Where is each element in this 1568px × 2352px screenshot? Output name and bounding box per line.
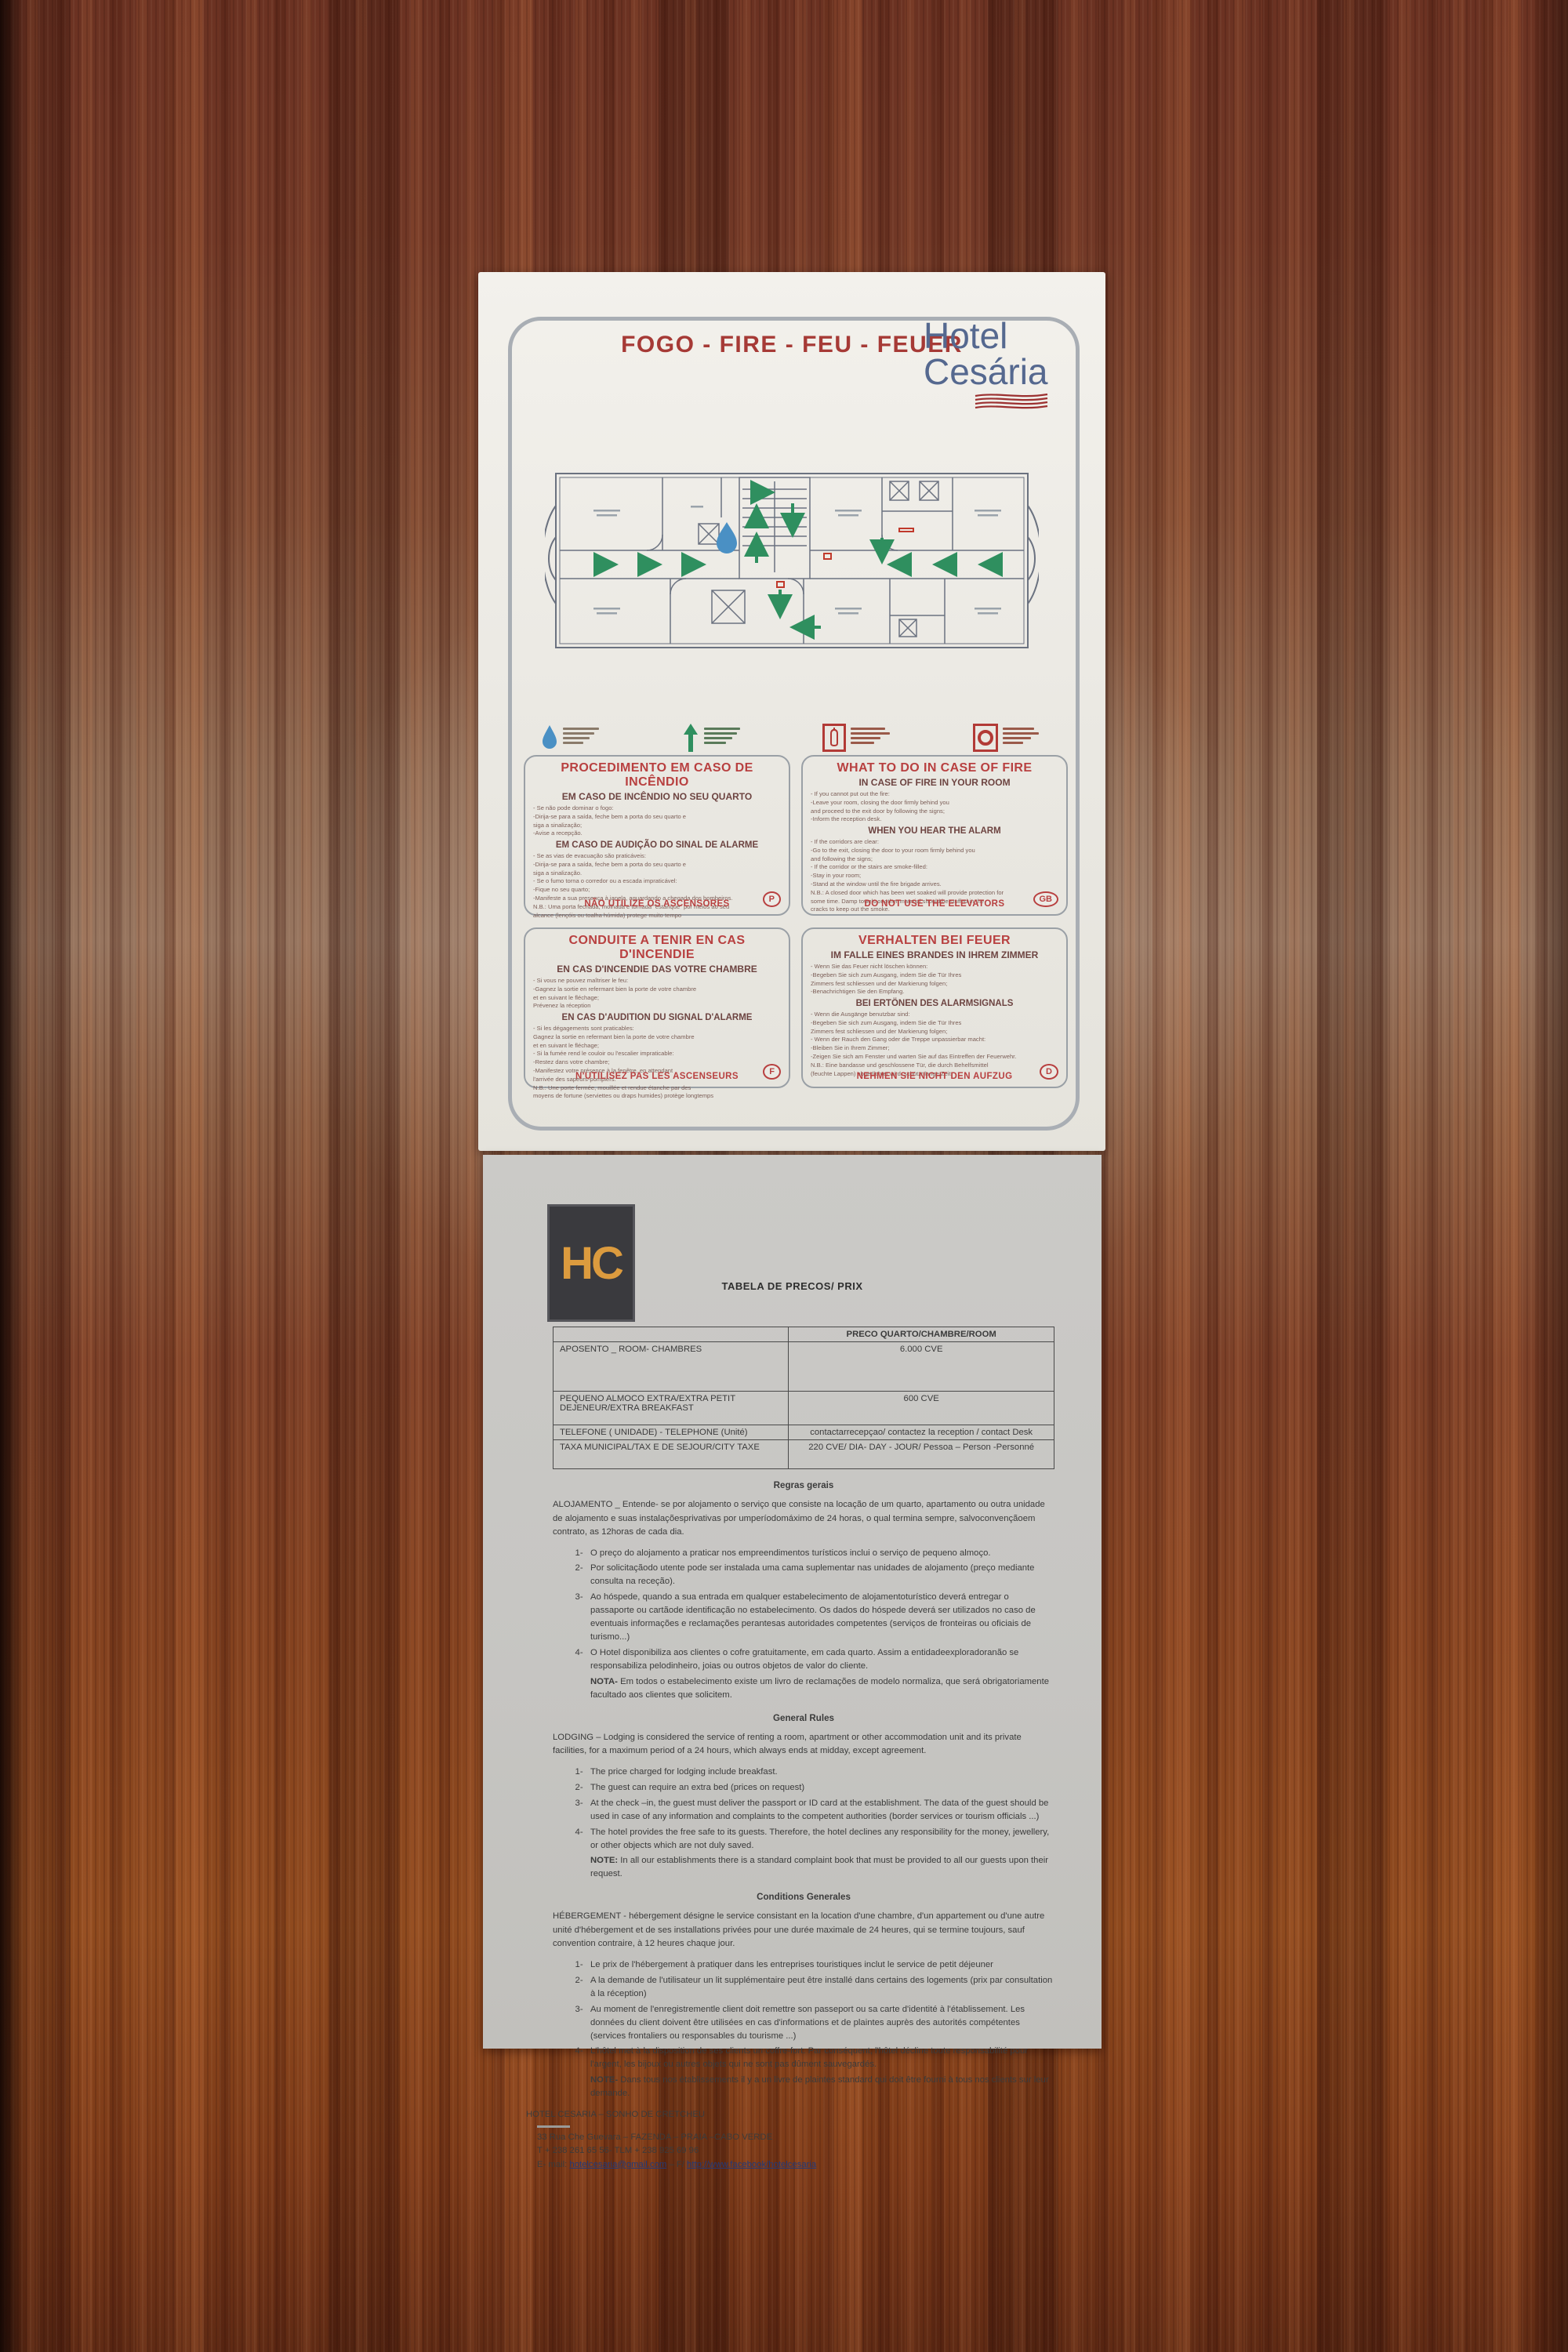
email-link[interactable]: hotelcesaria@gmail.com — [569, 2160, 666, 2169]
notice-body: - Wenn Sie das Feuer nicht löschen könne… — [811, 963, 1058, 996]
evacuation-floor-plan — [545, 463, 1039, 659]
you-are-here-droplet — [717, 522, 737, 554]
list-item: The guest can require an extra bed (pric… — [590, 1781, 1054, 1795]
fire-hose-reel-icon — [973, 724, 998, 752]
table-cell-label: PEQUENO ALMOCO EXTRA/EXTRA PETIT DEJENEU… — [554, 1392, 789, 1425]
table-cell-label: APOSENTO _ ROOM- CHAMBRES — [554, 1342, 789, 1392]
plan-legend — [508, 724, 1072, 752]
rules-list-en: The price charged for lodging include br… — [575, 1766, 1054, 1853]
heading-general-rules: General Rules — [553, 1713, 1054, 1723]
hotel-name-line: HOTEL CESARIA – SONHO DE CRETCHEU — [526, 2108, 1054, 2122]
hc-logo: HC — [547, 1204, 635, 1322]
table-row: APOSENTO _ ROOM- CHAMBRES 6.000 CVE — [554, 1342, 1054, 1392]
heading-regras-gerais: Regras gerais — [553, 1480, 1054, 1490]
list-item: At the check –in, the guest must deliver… — [590, 1797, 1054, 1824]
email-prefix: E- mail: — [537, 2160, 567, 2169]
notice-body: - If you cannot put out the fire: -Leave… — [811, 790, 1058, 824]
notice-subtitle: IM FALLE EINES BRANDES IN IHREM ZIMMER — [811, 949, 1058, 960]
legend-fire-extinguisher — [822, 724, 890, 752]
list-item: L'hôtel met à la disposition de ses clie… — [590, 2045, 1054, 2071]
notice-subtitle: IN CASE OF FIRE IN YOUR ROOM — [811, 777, 1058, 788]
notice-french: CONDUITE A TENIR EN CAS D'INCENDIE EN CA… — [524, 927, 790, 1088]
notice-mid-heading: EM CASO DE AUDIÇÃO DO SINAL DE ALARME — [533, 840, 781, 850]
list-item: The price charged for lodging include br… — [590, 1766, 1054, 1779]
legend-caption-smudge — [704, 725, 740, 746]
notice-mid-heading: EN CAS D'AUDITION DU SIGNAL D'ALARME — [533, 1013, 781, 1022]
faded-text-smudge — [537, 2125, 570, 2128]
list-item: Por solicitaçãodo utente pode ser instal… — [590, 1562, 1054, 1588]
list-item: Au moment de l'enregistrementle client d… — [590, 2003, 1054, 2043]
email-line: E- mail: hotelcesaria@gmail.com – F/ htt… — [537, 2158, 1054, 2172]
table-cell-value: 600 CVE — [789, 1392, 1054, 1425]
nota-line: NOTA- Em todos o estabelecimento existe … — [590, 1675, 1054, 1702]
language-badge: P — [763, 891, 781, 907]
notice-body: - Si vous ne pouvez maîtriser le feu: -G… — [533, 977, 781, 1011]
notice-warning: DO NOT USE THE ELEVATORS — [803, 899, 1066, 909]
notice-body: - Se não pode dominar o fogo: -Dirija-se… — [533, 804, 781, 838]
language-badge: D — [1040, 1064, 1058, 1080]
legend-caption-smudge — [1003, 725, 1039, 746]
notice-body: - Se as vias de evacuação são praticávei… — [533, 852, 781, 920]
language-badge: GB — [1033, 891, 1059, 907]
notice-body: - Si les dégagements sont praticables: G… — [533, 1025, 781, 1101]
note-line: NOTE- Dans tous nos établissements il y … — [590, 2074, 1054, 2100]
list-item: Ao hóspede, quando a sua entrada em qual… — [590, 1591, 1054, 1644]
table-header-price: PRECO QUARTO/CHAMBRE/ROOM — [789, 1327, 1054, 1342]
legend-you-are-here — [541, 724, 599, 752]
rules-list-fr: Le prix de l'hébergement à pratiquer dan… — [575, 1958, 1054, 2072]
paragraph-lodging: LODGING – Lodging is considered the serv… — [553, 1731, 1054, 1759]
legend-evacuation-route — [682, 724, 740, 752]
notice-english: WHAT TO DO IN CASE OF FIRE IN CASE OF FI… — [801, 755, 1068, 916]
table-row: PRECO QUARTO/CHAMBRE/ROOM — [554, 1327, 1054, 1342]
table-cell-value: contactarrecepçao/ contactez la receptio… — [789, 1425, 1054, 1440]
legend-caption-smudge — [563, 725, 599, 746]
notice-warning: NEHMEN SIE NICHT DEN AUFZUG — [803, 1072, 1066, 1081]
notice-subtitle: EN CAS D'INCENDIE DAS VOTRE CHAMBRE — [533, 964, 781, 975]
table-cell-label: TELEFONE ( UNIDADE) - TELEPHONE (Unité) — [554, 1425, 789, 1440]
legend-fire-hose — [973, 724, 1039, 752]
notice-mid-heading: BEI ERTÖNEN DES ALARMSIGNALS — [811, 999, 1058, 1008]
heading-conditions-generales: Conditions Generales — [553, 1892, 1054, 1902]
notice-title: VERHALTEN BEI FEUER — [811, 934, 1058, 948]
table-row: TELEFONE ( UNIDADE) - TELEPHONE (Unité) … — [554, 1425, 1054, 1440]
notice-title: PROCEDIMENTO EM CASO DE INCÊNDIO — [533, 761, 781, 789]
note-line: NOTE: In all our establishments there is… — [590, 1854, 1054, 1881]
address-line: 33 Rua Che Guevara – FAZENDA – PRAIA –CA… — [537, 2131, 1054, 2145]
link-separator: – F/ — [669, 2160, 684, 2169]
list-item: O preço do alojamento a praticar nos emp… — [590, 1547, 1054, 1560]
rules-list-pt: O preço do alojamento a praticar nos emp… — [575, 1547, 1054, 1673]
table-cell-value: 220 CVE/ DIA- DAY - JOUR/ Pessoa – Perso… — [789, 1440, 1054, 1469]
fire-extinguisher-icon — [822, 724, 846, 752]
paragraph-hebergement: HÉBERGEMENT - hébergement désigne le ser… — [553, 1910, 1054, 1951]
price-sheet-title: TABELA DE PRECOS/ PRIX — [483, 1280, 1102, 1292]
photo-of-hotel-door: FOGO - FIRE - FEU - FEUER Hotel Cesária — [0, 0, 1568, 2352]
notice-title: CONDUITE A TENIR EN CAS D'INCENDIE — [533, 934, 781, 962]
notice-body: - Wenn die Ausgänge benutzbar sind: -Beg… — [811, 1011, 1058, 1078]
fire-evacuation-sheet: FOGO - FIRE - FEU - FEUER Hotel Cesária — [478, 272, 1105, 1151]
list-item: O Hotel disponibiliza aos clientes o cof… — [590, 1646, 1054, 1673]
evacuation-arrow-icon — [682, 724, 699, 752]
table-cell-label: TAXA MUNICIPAL/TAX E DE SEJOUR/CITY TAXE — [554, 1440, 789, 1469]
notice-portuguese: PROCEDIMENTO EM CASO DE INCÊNDIO EM CASO… — [524, 755, 790, 916]
price-rules-sheet: HC TABELA DE PRECOS/ PRIX PRECO QUARTO/C… — [483, 1155, 1102, 2049]
facebook-link[interactable]: http://www.facebook/hotelcesaria — [687, 2160, 816, 2169]
notice-title: WHAT TO DO IN CASE OF FIRE — [811, 761, 1058, 775]
language-badge: F — [763, 1064, 781, 1080]
table-row: PEQUENO ALMOCO EXTRA/EXTRA PETIT DEJENEU… — [554, 1392, 1054, 1425]
notice-german: VERHALTEN BEI FEUER IM FALLE EINES BRAND… — [801, 927, 1068, 1088]
list-item: Le prix de l'hébergement à pratiquer dan… — [590, 1958, 1054, 1972]
legend-caption-smudge — [851, 725, 890, 746]
logo-waves-icon — [974, 393, 1049, 410]
table-cell-value: 6.000 CVE — [789, 1342, 1054, 1392]
footer-contact-block: HOTEL CESARIA – SONHO DE CRETCHEU 33 Rua… — [537, 2108, 1054, 2172]
notice-mid-heading: WHEN YOU HEAR THE ALARM — [811, 826, 1058, 836]
hotel-cesaria-logo: Hotel Cesária — [924, 318, 1065, 410]
phone-line: T + 238 261 65 56- TLM + 238 925 69 96 — [537, 2144, 1054, 2158]
notice-subtitle: EM CASO DE INCÊNDIO NO SEU QUARTO — [533, 791, 781, 802]
document-body: PRECO QUARTO/CHAMBRE/ROOM APOSENTO _ ROO… — [553, 1327, 1054, 2172]
table-cell-empty — [554, 1327, 789, 1342]
droplet-icon — [541, 724, 558, 750]
price-table: PRECO QUARTO/CHAMBRE/ROOM APOSENTO _ ROO… — [553, 1327, 1054, 1469]
notice-warning: NÃO UTILIZE OS ASCENSORES — [525, 899, 789, 909]
brand-line2: Cesária — [924, 354, 1065, 390]
brand-line1: Hotel — [924, 318, 1065, 354]
list-item: The hotel provides the free safe to its … — [590, 1826, 1054, 1853]
paragraph-alojamento: ALOJAMENTO _ Entende- se por alojamento … — [553, 1498, 1054, 1540]
notice-warning: N'UTILISEZ PAS LES ASCENSEURS — [525, 1072, 789, 1081]
table-row: TAXA MUNICIPAL/TAX E DE SEJOUR/CITY TAXE… — [554, 1440, 1054, 1469]
list-item: A la demande de l'utilisateur un lit sup… — [590, 1974, 1054, 2001]
